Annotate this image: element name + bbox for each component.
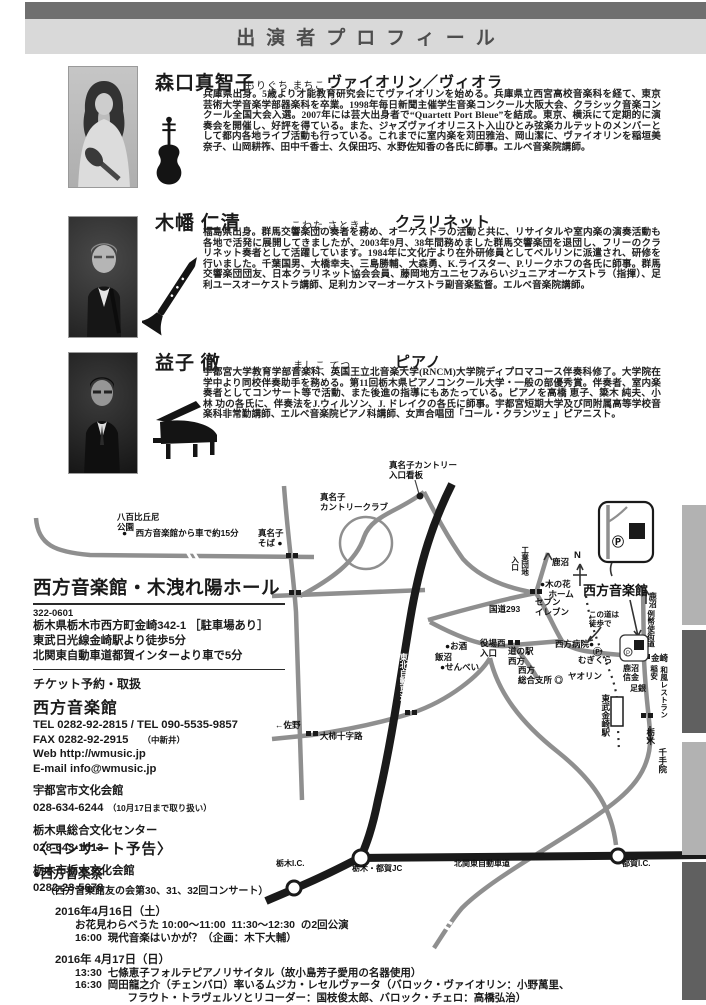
performer-profile: 木幡 仁清 こわた さときよ クラリネット 福島県出身。群馬交響楽団の奏者を務め…: [0, 206, 706, 351]
performer-profile: 森口真智子 もりぐち まちこ ヴァイオリン／ヴィオラ 兵庫県出身。5歳より才能教…: [0, 66, 706, 206]
venue-title: 西方音楽館・木洩れ陽ホール: [33, 574, 285, 605]
concert-event: 16:30 岡田龍之介（チェンバロ）率いるムジカ・レセルヴァータ（バロック・ヴァ…: [75, 979, 693, 992]
outlet-name: 西方音楽館: [33, 694, 285, 718]
clarinet-icon: [142, 248, 204, 340]
edge-tab: [682, 630, 706, 733]
flyer-page: { "header": { "title": "出演者プロフィール" }, "p…: [0, 0, 706, 1000]
ticket-heading: チケット予約・取扱: [33, 675, 285, 692]
portrait-violinist: [69, 67, 138, 188]
postal-code: 322-0601: [33, 608, 285, 619]
access-train: 東武日光線金崎駅より徒歩5分: [33, 634, 285, 649]
performer-bio: 兵庫県出身。5歳より才能教育研究会にてヴァイオリンを始める。兵庫県立西宮高校音楽…: [203, 90, 661, 153]
svg-text:P: P: [626, 651, 630, 657]
outlet-tel: TEL 0282-92-2815 / TEL 090-5535-9857: [33, 718, 285, 733]
portrait-clarinetist: [69, 217, 138, 338]
concert-announcements: 〈コンサート予告〉 ●西方音楽祭 （西方音楽館友の会第30、31、32回コンサー…: [33, 838, 693, 1005]
outlet-web: Web http://wmusic.jp: [33, 747, 285, 762]
edge-tab: [682, 862, 706, 1000]
performer-bio: 福島県出身。群馬交響楽団の奏者を務め、オーケストラの活動と共に、リサイタルや室内…: [203, 228, 661, 291]
performer-photo: [68, 66, 138, 188]
concert-event: お花見わらべうた 10:00～11:00 11:30～12:30 の2回公演: [75, 919, 693, 932]
concert-date: 2016年4月16日（土）: [55, 903, 693, 919]
hall-inset-callout: [599, 502, 653, 562]
section-divider: [33, 669, 285, 670]
festival-name: ●西方音楽祭: [33, 863, 693, 882]
performer-photo: [68, 216, 138, 338]
outlet-name: 宇都宮市文化会館: [33, 782, 285, 798]
outlet-phone: 028-634-6244: [33, 802, 103, 814]
outlet-email: E-mail info@wmusic.jp: [33, 762, 285, 777]
country-club-circle: [340, 517, 392, 569]
concert-event: フラウト・トラヴェルソとリコーダー：国枝俊太郎、バロック・チェロ：高橋弘治）: [75, 992, 693, 1005]
concert-event: 16:00 現代音楽はいかが？（企画：木下大輔）: [75, 932, 693, 945]
outlet-fax-note: （中新井）: [142, 734, 185, 746]
edge-tab: [682, 742, 706, 855]
header-band: 出演者プロフィール: [25, 19, 706, 54]
announcements-heading: 〈コンサート予告〉: [33, 838, 693, 859]
festival-subtitle: （西方音楽館友の会第30、31、32回コンサート）: [45, 882, 693, 897]
concert-event: 13:30 七條恵子フォルテピアノリサイタル（故小島芳子愛用の名器使用）: [75, 967, 693, 980]
page-title: 出演者プロフィール: [225, 23, 506, 50]
railway-line: [586, 596, 619, 752]
edge-tab: [682, 505, 706, 625]
kanasaki-station-marker: [611, 697, 623, 726]
outlet-note: （10月17日まで取り扱い）: [108, 803, 212, 813]
venue-address: 栃木県栃木市西方町金崎342-1 ［駐車場あり］: [33, 619, 285, 634]
performer-bio: 宇都宮大学教育学部音楽科、英国王立北音楽大学(RNCM)大学院ディプロマコース伴…: [203, 368, 661, 421]
concert-date: 2016年 4月17日（日）: [55, 951, 693, 967]
hall-map-marker: P: [620, 635, 648, 661]
header-accent-bar: [25, 2, 706, 19]
ticket-outlet: 宇都宮市文化会館 028-634-6244 （10月17日まで取り扱い）: [33, 782, 285, 816]
access-car: 北関東自動車道都賀インターより車で5分: [33, 649, 285, 664]
outlet-name: 栃木県総合文化センター: [33, 822, 285, 838]
violin-icon: [152, 112, 186, 196]
outlet-fax: FAX 0282-92-2915: [33, 733, 128, 748]
